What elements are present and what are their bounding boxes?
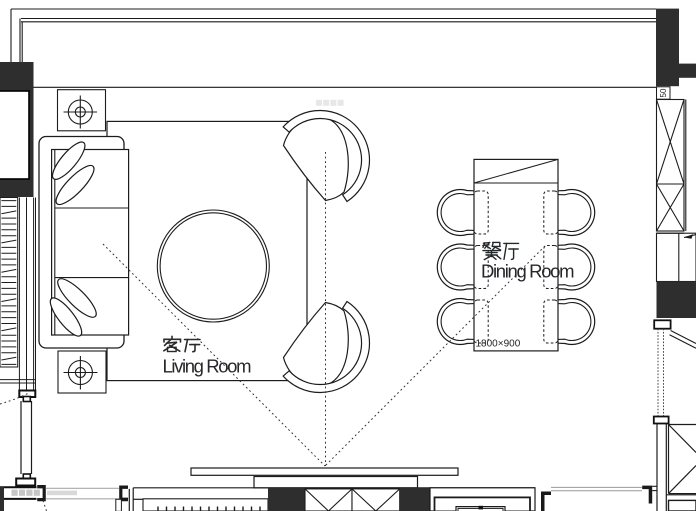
svg-text:1800×900: 1800×900 xyxy=(476,339,521,350)
svg-text:Dining Room: Dining Room xyxy=(481,261,575,282)
svg-text:50: 50 xyxy=(659,88,668,97)
svg-text:Living Room: Living Room xyxy=(163,355,252,376)
